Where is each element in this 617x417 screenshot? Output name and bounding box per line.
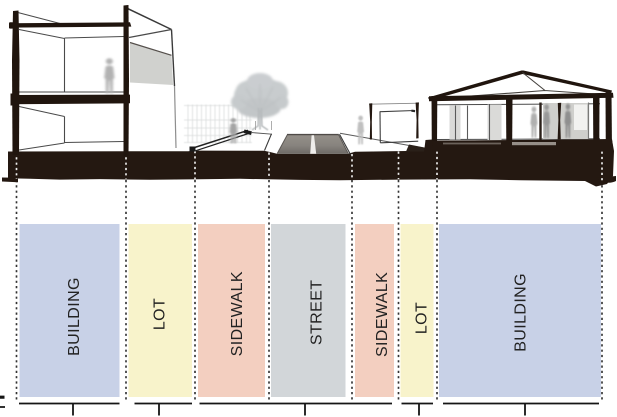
svg-text:BUILDING: BUILDING [66, 277, 83, 356]
svg-text:BUILDING: BUILDING [513, 273, 530, 352]
svg-text:LOT: LOT [413, 302, 430, 334]
svg-text:STREET: STREET [309, 280, 326, 346]
svg-text:SIDEWALK: SIDEWALK [229, 271, 246, 356]
svg-text:SIDEWALK: SIDEWALK [374, 272, 391, 357]
svg-text:LOT: LOT [151, 298, 168, 330]
